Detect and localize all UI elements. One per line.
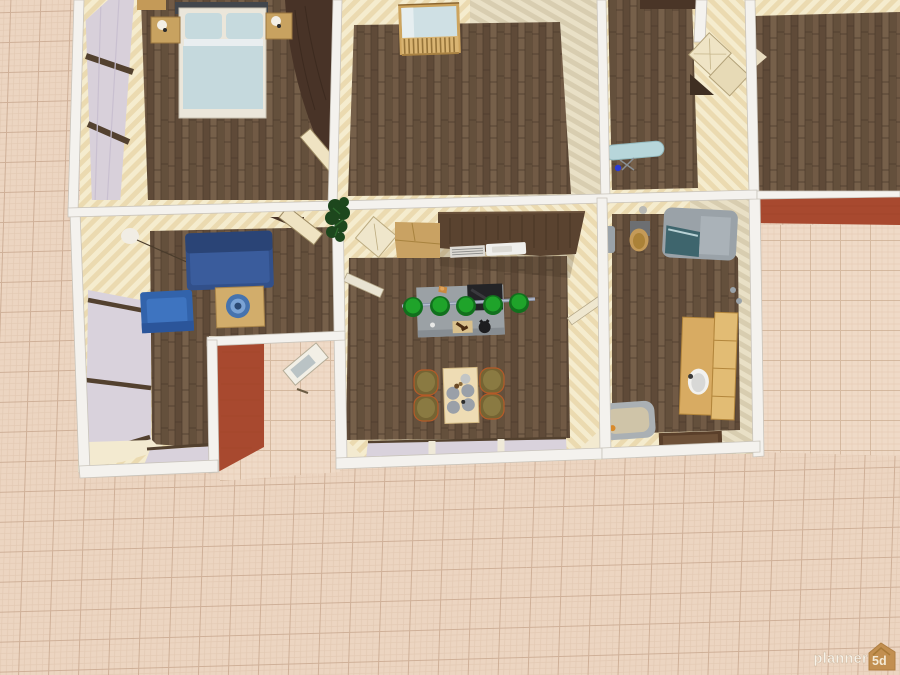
svg-text:5d: 5d	[872, 654, 887, 668]
svg-text:planner: planner	[814, 651, 869, 667]
